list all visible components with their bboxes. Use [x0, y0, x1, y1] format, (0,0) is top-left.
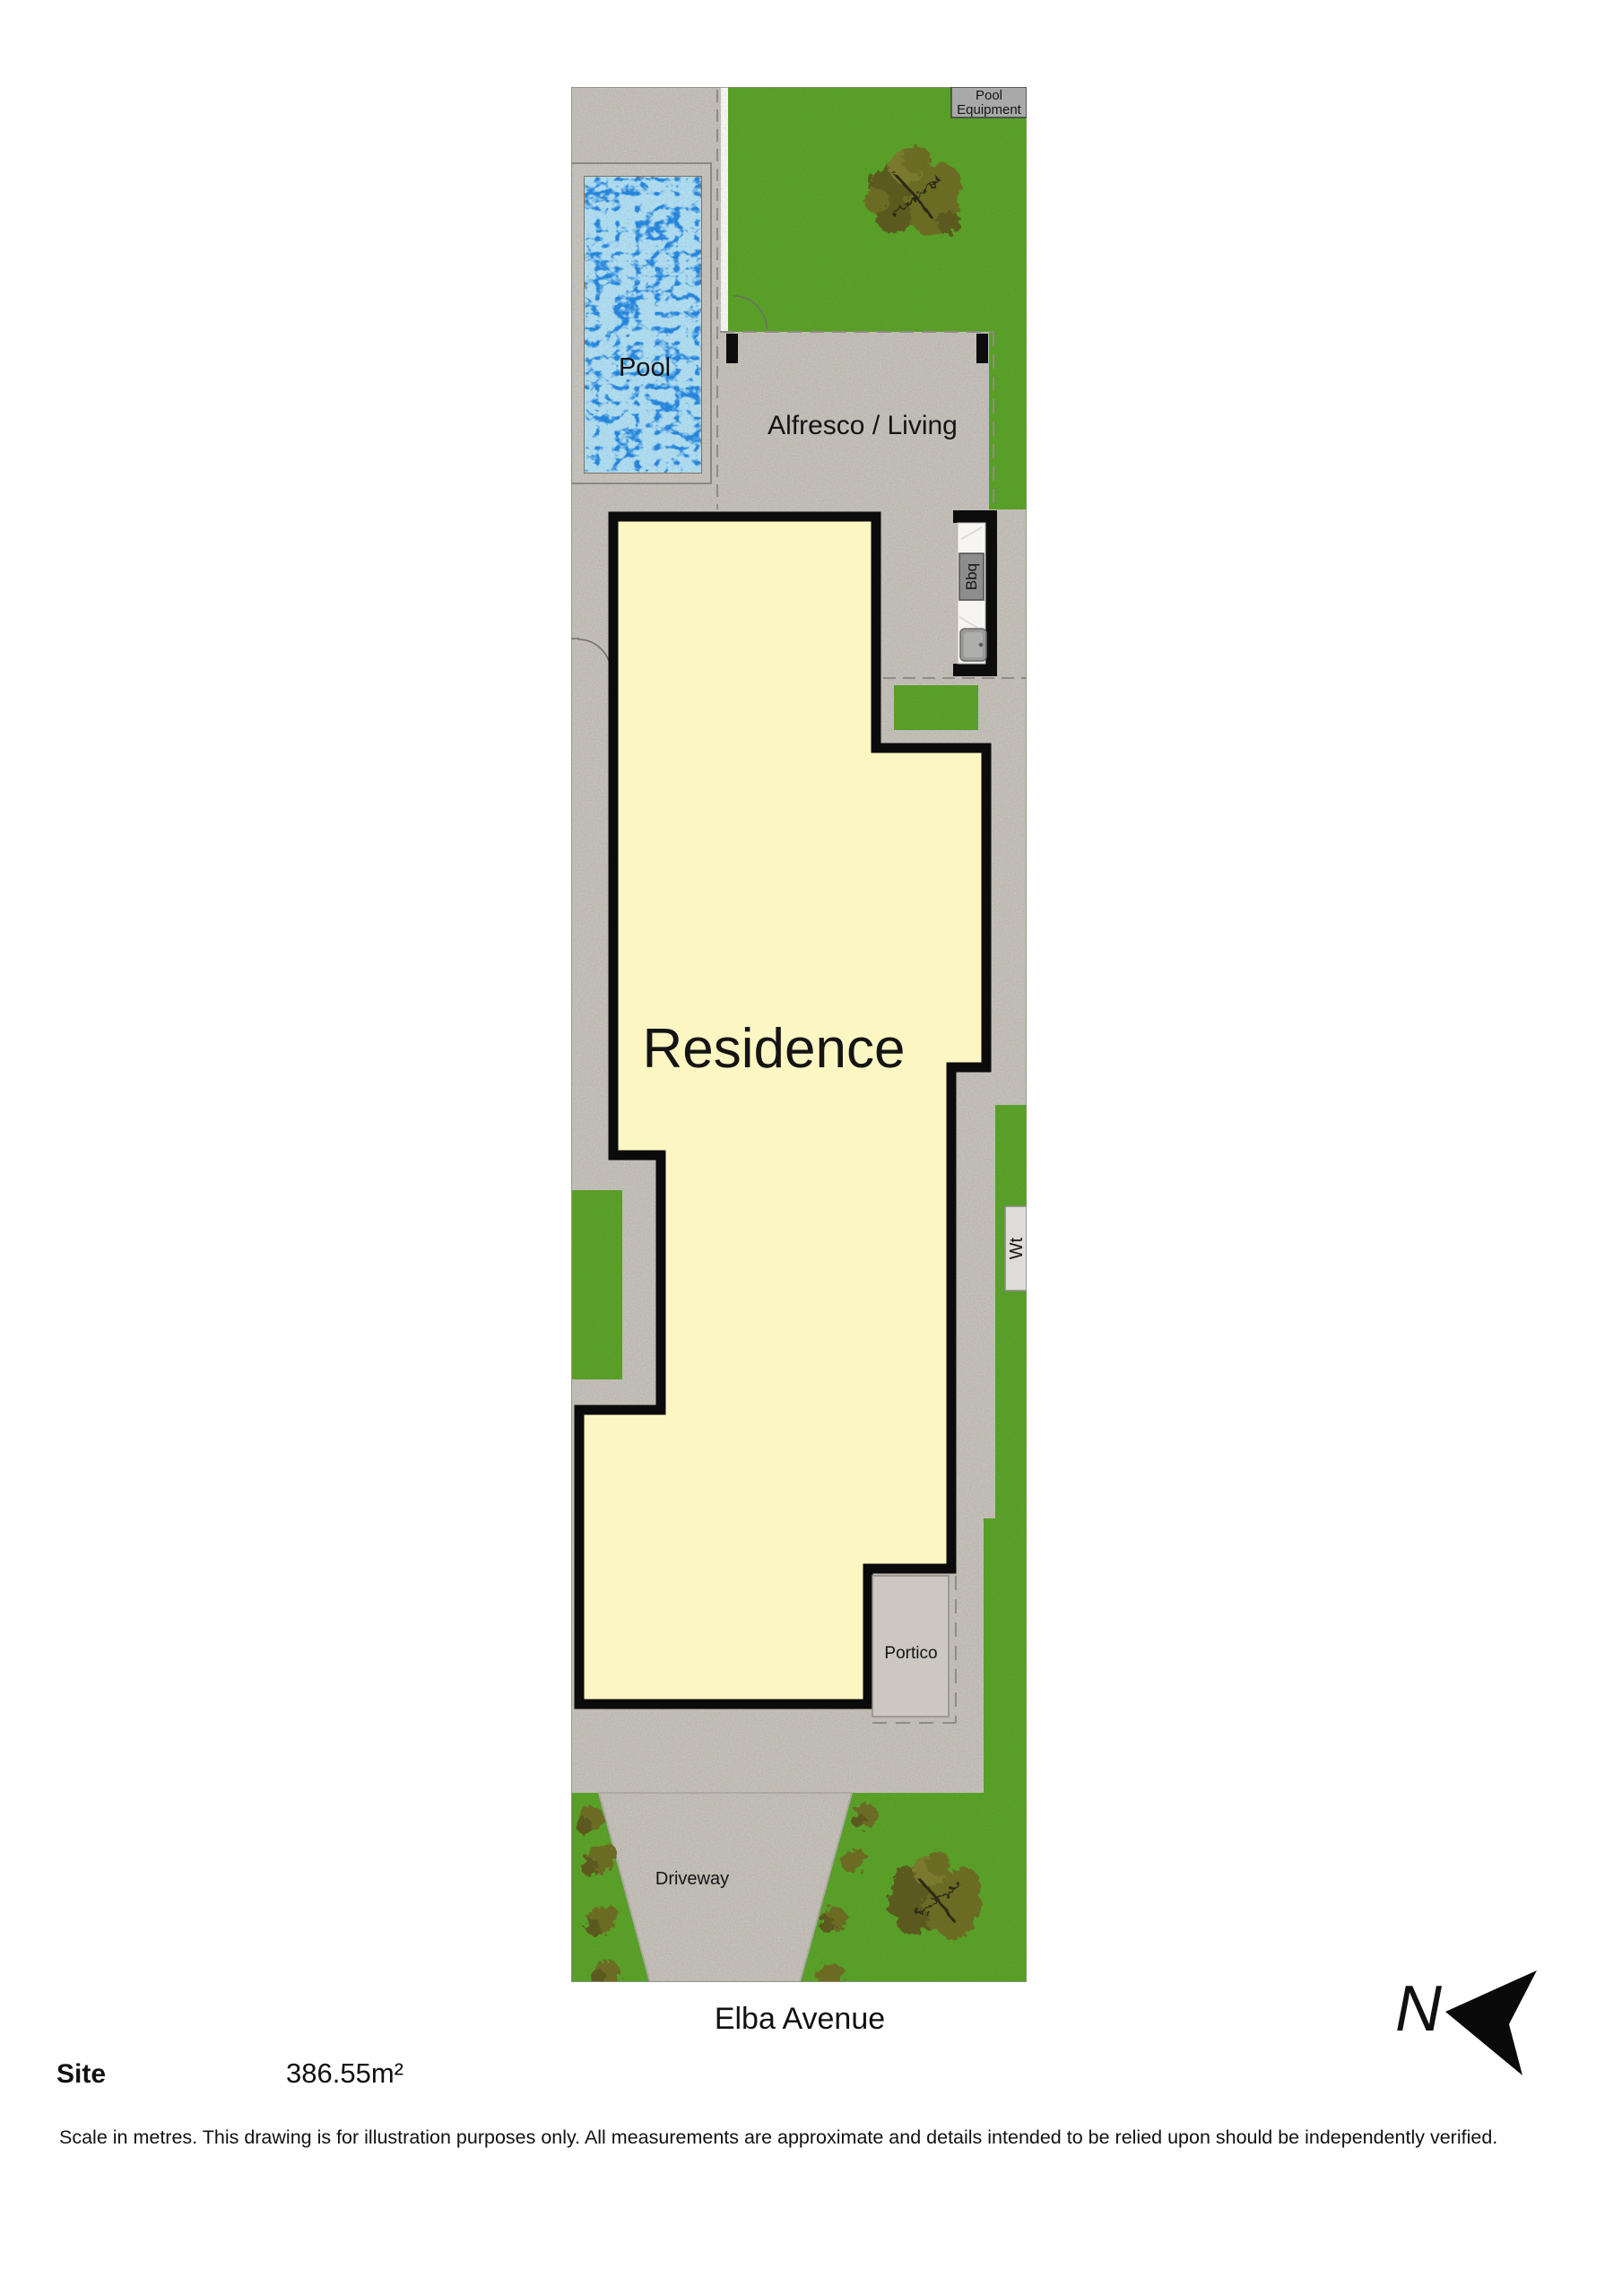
- bbq-label: Bbq: [963, 563, 980, 590]
- site-area-value: 386.55m²: [286, 2057, 403, 2089]
- portico-label: Portico: [884, 1644, 937, 1663]
- driveway-label: Driveway: [655, 1869, 729, 1889]
- alfresco-label: Alfresco / Living: [768, 411, 958, 440]
- disclaimer-text: Scale in metres. This drawing is for ill…: [59, 2126, 1497, 2148]
- site-label: Site: [56, 2059, 106, 2089]
- site-plan-drawing: Pool Pool Equipment Alfresco / Living Bb…: [0, 0, 1622, 2296]
- alfresco-jamb-right: [976, 334, 988, 363]
- north-arrow-glyph: [1445, 1970, 1537, 2075]
- alfresco-jamb-left: [726, 334, 738, 363]
- street-name: Elba Avenue: [715, 2002, 885, 2036]
- water-tank-label: Wt: [1007, 1237, 1027, 1259]
- pool-label: Pool: [619, 353, 671, 382]
- pool-equipment-label-line1: Pool: [976, 88, 1002, 103]
- site-plan-page: Pool Pool Equipment Alfresco / Living Bb…: [0, 0, 1622, 2296]
- pool-equipment-label-line2: Equipment: [957, 102, 1022, 117]
- bbq-area: [953, 510, 997, 676]
- north-label: N: [1395, 1973, 1443, 2045]
- north-arrow: N: [1395, 1970, 1537, 2075]
- bbq-sink: [960, 629, 986, 661]
- residence-label: Residence: [643, 1018, 906, 1080]
